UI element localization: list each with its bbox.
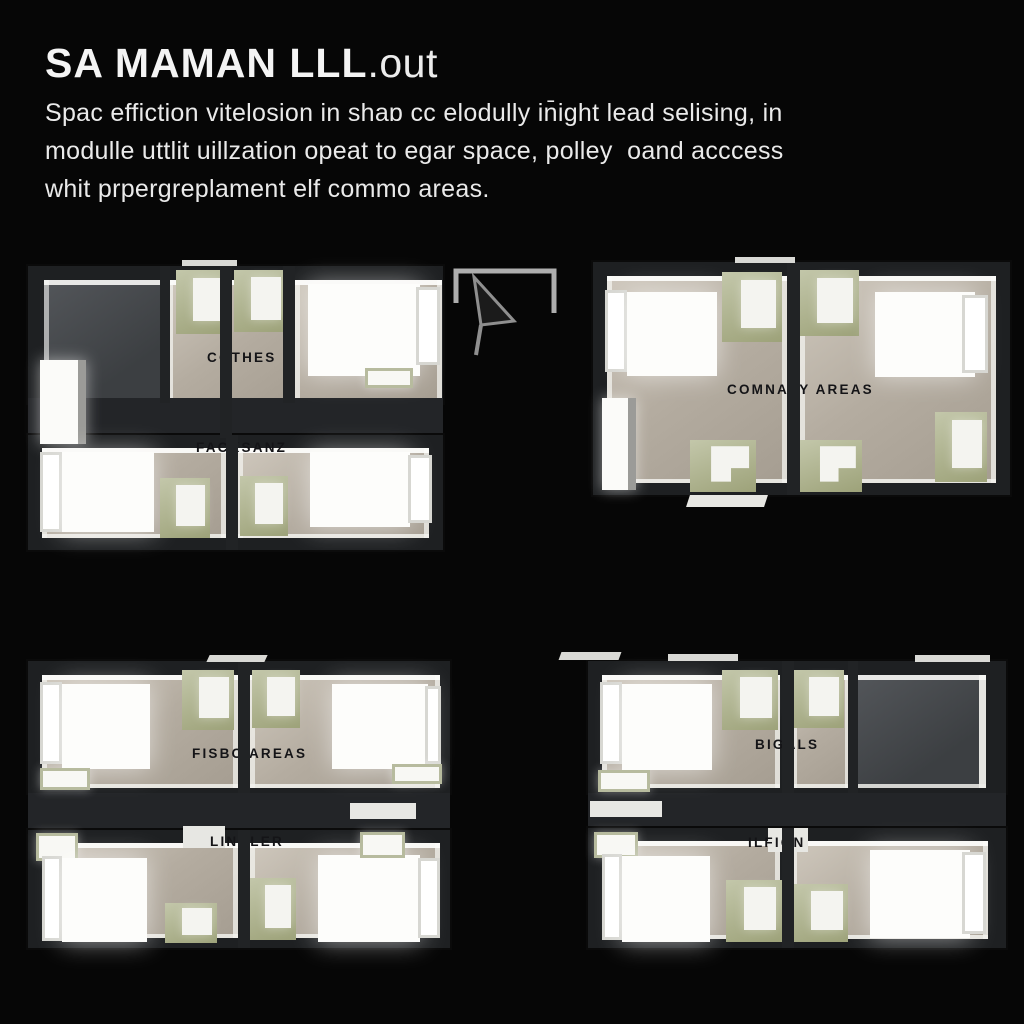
wardrobe (252, 670, 300, 728)
page-title-suffix: .out (367, 40, 437, 86)
wardrobe (160, 478, 210, 538)
room-label: ILFIGN (748, 835, 805, 850)
description-line: whit prpergreplament elf commo areas. (45, 170, 784, 208)
interior-wall (238, 661, 250, 793)
bed (622, 856, 710, 942)
wardrobe-front (176, 485, 205, 526)
wardrobe-front (193, 278, 223, 322)
bed (318, 855, 420, 942)
roof-vent (182, 260, 237, 266)
bed-headboard (42, 856, 62, 941)
cabinet-front (952, 420, 982, 468)
bed-headboard (602, 854, 622, 940)
roof-vent (559, 652, 622, 660)
nightstand (360, 832, 405, 858)
roof-vent (915, 655, 990, 662)
description-paragraph: Spac effiction vitelosion in shaɒ cc elo… (45, 94, 784, 208)
north-arrow-icon (438, 255, 570, 357)
wardrobe (234, 270, 286, 332)
roof-vent (206, 655, 267, 662)
bed (875, 292, 975, 377)
nightstand (40, 768, 90, 790)
wardrobe-front (809, 677, 839, 716)
room-label: COTHES (207, 350, 276, 365)
bed-headboard (600, 682, 622, 764)
wardrobe-front (255, 483, 283, 524)
bed-headboard (962, 852, 986, 934)
bed-headboard (416, 287, 440, 365)
dresser (250, 878, 296, 940)
interior-wall (782, 661, 794, 793)
page-title-main: SA MAMAN LLL (45, 40, 367, 86)
wardrobe-front (251, 277, 281, 319)
bed-headboard (605, 290, 627, 372)
ledge (350, 803, 416, 819)
room-floor-dark (858, 675, 986, 788)
dresser (165, 903, 217, 943)
room-label: FACKSANZ (196, 440, 287, 455)
wardrobe-front (741, 280, 776, 328)
wardrobe-front (199, 677, 229, 718)
page-title: SA MAMAN LLL.out (45, 40, 438, 87)
ledge (590, 801, 662, 817)
desk-top (711, 446, 749, 481)
cabinet (935, 412, 987, 482)
wardrobe (722, 670, 778, 730)
interior-wall (848, 661, 858, 793)
description-line: modulle uttlit uillzation opeat to egar … (45, 132, 784, 170)
bed (622, 684, 712, 770)
interior-wall (226, 435, 238, 550)
desk (800, 440, 862, 492)
corridor-top-left (28, 398, 443, 438)
wardrobe-front (740, 677, 773, 718)
nightstand (598, 770, 650, 792)
roof-vent (735, 257, 795, 263)
dresser-front (744, 887, 777, 929)
wardrobe (240, 476, 288, 536)
description-line: Spac effiction vitelosion in shaɒ cc elo… (45, 94, 784, 132)
desk (690, 440, 756, 492)
room-label: COMNAVY AREAS (727, 382, 874, 397)
desk-top (820, 446, 856, 481)
bed (62, 452, 154, 532)
dresser (726, 880, 782, 942)
bed-headboard (40, 682, 62, 764)
dresser-front (182, 908, 212, 935)
nightstand (392, 764, 442, 784)
wardrobe-front (267, 677, 295, 716)
bed-headboard (425, 686, 441, 764)
interior-wall (283, 266, 295, 403)
wardrobe-front (817, 278, 853, 323)
wardrobe (792, 670, 844, 728)
interior-wall (238, 830, 250, 948)
bed (308, 284, 420, 376)
bed (627, 292, 717, 376)
wardrobe (182, 670, 234, 730)
bed-bench (365, 368, 413, 388)
bed-headboard (962, 295, 988, 373)
interior-wall (782, 828, 794, 948)
bed (332, 684, 428, 769)
poster-canvas: SA MAMAN LLL.out Spac effiction vitelosi… (0, 0, 1024, 1024)
bed-headboard (408, 455, 432, 523)
wardrobe (722, 272, 782, 342)
wardrobe (797, 270, 859, 336)
bed (62, 684, 150, 769)
bed-headboard (418, 858, 440, 938)
washer-cabinet (40, 360, 86, 444)
dresser-front (265, 885, 292, 927)
dresser-front (811, 891, 842, 930)
bed (870, 850, 970, 938)
interior-wall (220, 266, 232, 438)
dresser (794, 884, 848, 942)
tall-cabinet (602, 398, 636, 490)
interior-wall (160, 266, 170, 403)
ledge (686, 495, 768, 507)
roof-vent (668, 654, 738, 661)
bed (62, 858, 147, 942)
interior-wall (787, 262, 800, 495)
bed (310, 452, 410, 527)
bed-headboard (40, 452, 62, 532)
